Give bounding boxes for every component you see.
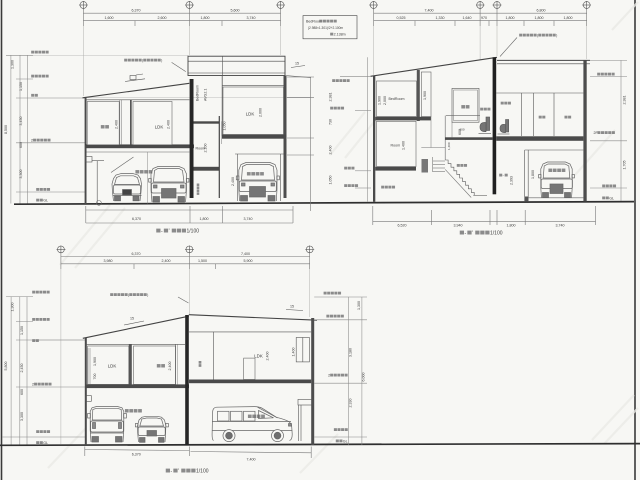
svg-text:2,330: 2,330 bbox=[349, 399, 353, 408]
svg-text:600: 600 bbox=[460, 128, 465, 132]
svg-text:1,300: 1,300 bbox=[11, 303, 15, 312]
svg-text:2.138m: 2.138m bbox=[334, 33, 346, 37]
svg-text:2,000: 2,000 bbox=[259, 108, 263, 117]
svg-text:600: 600 bbox=[20, 389, 24, 395]
svg-text:15: 15 bbox=[295, 62, 299, 66]
svg-text:15: 15 bbox=[130, 317, 134, 321]
svg-text:2: 2 bbox=[31, 139, 33, 143]
svg-text:1,800: 1,800 bbox=[201, 16, 210, 20]
svg-text:2,381: 2,381 bbox=[623, 96, 627, 105]
svg-text:AVG2.1: AVG2.1 bbox=[204, 89, 208, 101]
svg-text:970: 970 bbox=[481, 16, 487, 20]
svg-text:GL: GL bbox=[43, 199, 48, 203]
svg-text:1,400: 1,400 bbox=[292, 348, 296, 357]
svg-text:1,900: 1,900 bbox=[93, 357, 97, 366]
svg-text:6,800: 6,800 bbox=[537, 9, 546, 13]
svg-text:3,740: 3,740 bbox=[247, 16, 256, 20]
svg-text:6,520: 6,520 bbox=[398, 224, 407, 228]
svg-text:2,400: 2,400 bbox=[266, 352, 270, 361]
svg-text:6,370: 6,370 bbox=[132, 9, 141, 13]
svg-text:3,450: 3,450 bbox=[19, 117, 23, 126]
svg-text:1,800: 1,800 bbox=[506, 16, 515, 20]
svg-text:7,400: 7,400 bbox=[247, 458, 256, 462]
svg-text:2,381: 2,381 bbox=[329, 93, 333, 102]
svg-text:2,450: 2,450 bbox=[20, 364, 24, 373]
svg-text:1/100: 1/100 bbox=[490, 231, 503, 237]
svg-text:2,400: 2,400 bbox=[167, 120, 171, 129]
svg-text:1,600: 1,600 bbox=[105, 16, 114, 20]
svg-text:1,800: 1,800 bbox=[535, 16, 544, 20]
svg-text:': ' bbox=[169, 229, 170, 235]
svg-text:6,370: 6,370 bbox=[132, 453, 141, 457]
svg-text:1,800: 1,800 bbox=[564, 16, 573, 20]
svg-text:BedRoom: BedRoom bbox=[389, 97, 405, 101]
svg-text:6,370: 6,370 bbox=[132, 217, 141, 221]
svg-text:LDK: LDK bbox=[254, 354, 263, 359]
svg-text:2,400: 2,400 bbox=[329, 146, 333, 155]
svg-text:3,300: 3,300 bbox=[20, 412, 24, 421]
svg-text:BedRoom: BedRoom bbox=[196, 85, 200, 101]
svg-text:1,050: 1,050 bbox=[329, 176, 333, 185]
svg-text:3,740: 3,740 bbox=[244, 217, 253, 221]
svg-text:1,150: 1,150 bbox=[20, 326, 24, 335]
svg-text:1,330: 1,330 bbox=[436, 16, 445, 20]
svg-text:1,900: 1,900 bbox=[378, 96, 382, 105]
svg-text:1,800: 1,800 bbox=[507, 224, 516, 228]
svg-text:GL: GL bbox=[609, 196, 614, 200]
svg-text:': ' bbox=[472, 231, 473, 237]
svg-text:(2.988×1.301)/2+2.100m: (2.988×1.301)/2+2.100m bbox=[308, 26, 343, 30]
svg-text:5,800: 5,800 bbox=[4, 362, 8, 371]
svg-text:1/100: 1/100 bbox=[187, 229, 200, 235]
svg-text:2,000: 2,000 bbox=[383, 96, 387, 105]
svg-text:2,400: 2,400 bbox=[168, 362, 172, 371]
svg-text:1/100: 1/100 bbox=[196, 469, 209, 475]
svg-text:6,370: 6,370 bbox=[132, 252, 141, 256]
svg-text:5,600: 5,600 bbox=[231, 9, 240, 13]
svg-text:3,300: 3,300 bbox=[19, 170, 23, 179]
svg-text:8,500: 8,500 bbox=[4, 125, 8, 134]
svg-text:6,000: 6,000 bbox=[362, 373, 366, 382]
svg-text:1,800: 1,800 bbox=[200, 217, 209, 221]
svg-text:3,740: 3,740 bbox=[556, 224, 565, 228]
svg-text:2,400: 2,400 bbox=[162, 259, 171, 263]
svg-text:1,705: 1,705 bbox=[623, 161, 627, 170]
svg-text:1,900: 1,900 bbox=[423, 91, 427, 100]
svg-text:LDK: LDK bbox=[155, 125, 164, 130]
svg-text:2,393: 2,393 bbox=[510, 176, 514, 185]
svg-text:1,800: 1,800 bbox=[531, 170, 535, 179]
svg-text:600: 600 bbox=[19, 142, 23, 148]
svg-text:2: 2 bbox=[32, 383, 34, 387]
svg-text:2,400: 2,400 bbox=[115, 120, 119, 129]
svg-text:): ) bbox=[147, 293, 148, 297]
svg-text:730: 730 bbox=[329, 119, 333, 125]
svg-text:3,980: 3,980 bbox=[104, 259, 113, 263]
svg-text:GL: GL bbox=[343, 439, 348, 443]
svg-text:2,600: 2,600 bbox=[158, 16, 167, 20]
svg-text:3,180: 3,180 bbox=[349, 348, 353, 357]
svg-text:1,400: 1,400 bbox=[447, 142, 451, 150]
svg-text:1,300: 1,300 bbox=[11, 60, 15, 69]
svg-text:Room: Room bbox=[391, 144, 401, 148]
svg-text:0,525: 0,525 bbox=[397, 16, 406, 20]
svg-text:5,900: 5,900 bbox=[244, 259, 253, 263]
svg-text:1,150: 1,150 bbox=[19, 82, 23, 91]
svg-text:15: 15 bbox=[290, 305, 294, 309]
svg-text:LDK: LDK bbox=[246, 112, 255, 117]
svg-text:700: 700 bbox=[93, 374, 97, 380]
svg-text:1,300: 1,300 bbox=[357, 301, 361, 310]
svg-text:': ' bbox=[178, 469, 179, 475]
svg-text:1,500: 1,500 bbox=[198, 259, 207, 263]
svg-text:1,400: 1,400 bbox=[402, 141, 406, 150]
svg-text:3,940: 3,940 bbox=[454, 224, 463, 228]
svg-text:): ) bbox=[161, 59, 162, 63]
svg-text:2,100: 2,100 bbox=[204, 144, 208, 153]
svg-text:1,640: 1,640 bbox=[463, 16, 472, 20]
svg-text:7,400: 7,400 bbox=[425, 9, 434, 13]
svg-text:LDK: LDK bbox=[108, 364, 117, 369]
svg-text:2: 2 bbox=[328, 374, 330, 378]
svg-text:): ) bbox=[556, 34, 557, 38]
svg-text:7,400: 7,400 bbox=[241, 252, 250, 256]
svg-text:2,400: 2,400 bbox=[231, 177, 235, 186]
